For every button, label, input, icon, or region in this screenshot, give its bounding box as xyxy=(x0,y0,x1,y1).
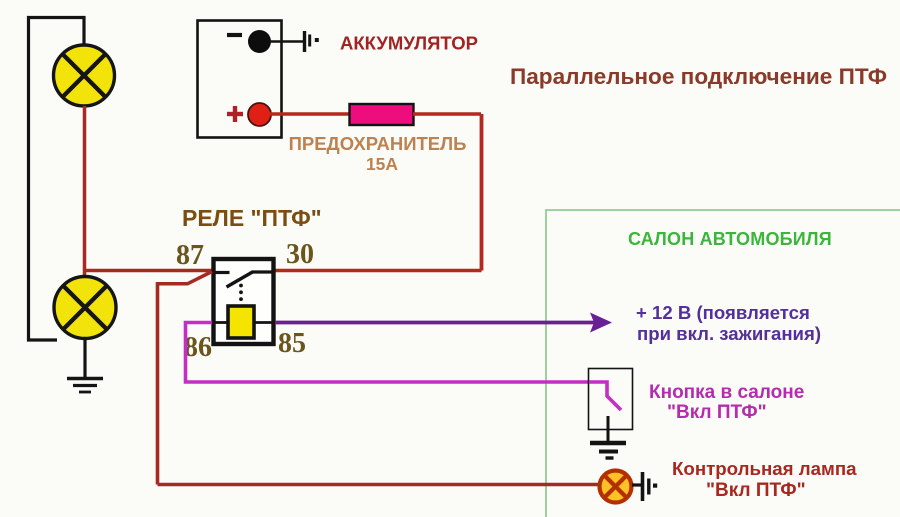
svg-text:85: 85 xyxy=(278,328,306,359)
svg-text:86: 86 xyxy=(184,332,212,363)
svg-text:РЕЛЕ "ПТФ": РЕЛЕ "ПТФ" xyxy=(182,205,322,231)
svg-text:Параллельное подключение ПТФ: Параллельное подключение ПТФ xyxy=(510,64,887,89)
svg-text:Кнопка в салоне: Кнопка в салоне xyxy=(649,382,804,403)
svg-text:при вкл. зажигания): при вкл. зажигания) xyxy=(637,323,821,344)
svg-text:АККУМУЛЯТОР: АККУМУЛЯТОР xyxy=(340,33,478,54)
svg-text:+ 12 В (появляется: + 12 В (появляется xyxy=(636,302,810,323)
svg-text:"Вкл ПТФ": "Вкл ПТФ" xyxy=(667,402,767,423)
svg-text:30: 30 xyxy=(286,239,314,270)
svg-text:ПРЕДОХРАНИТЕЛЬ: ПРЕДОХРАНИТЕЛЬ xyxy=(289,133,467,154)
svg-text:"Вкл ПТФ": "Вкл ПТФ" xyxy=(706,480,806,501)
svg-text:Контрольная лампа: Контрольная лампа xyxy=(672,458,857,479)
svg-text:15А: 15А xyxy=(366,154,398,174)
svg-text:87: 87 xyxy=(176,240,204,271)
svg-text:САЛОН АВТОМОБИЛЯ: САЛОН АВТОМОБИЛЯ xyxy=(628,229,832,249)
